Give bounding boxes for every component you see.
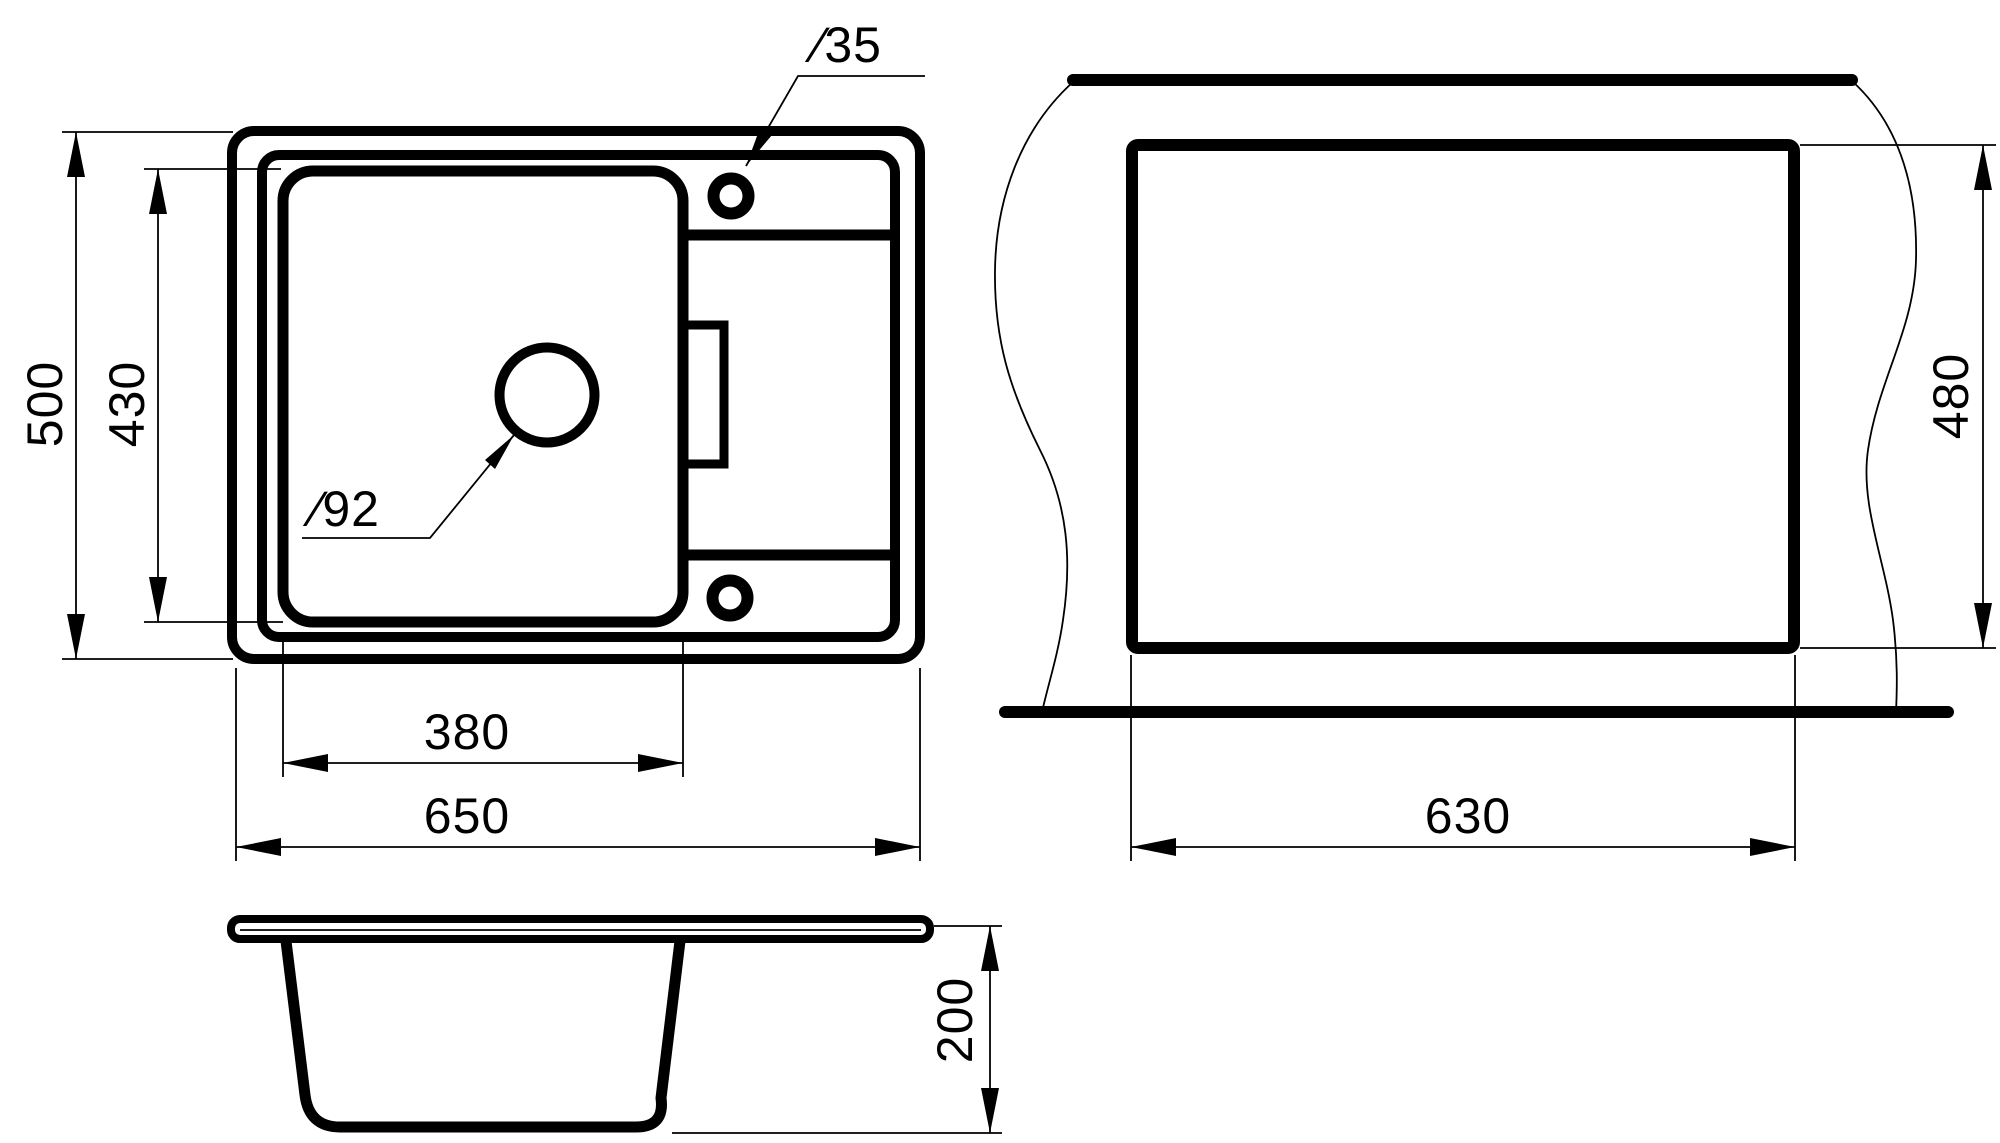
leader-drain-diameter: ∕92 (302, 435, 514, 538)
break-line-left (995, 82, 1073, 712)
cutout-outline (1132, 145, 1794, 648)
drawing-canvas: 500 430 380 650 (0, 0, 2000, 1143)
side-rim-plate (231, 919, 930, 939)
bowl-side-tab (683, 325, 724, 464)
dim-480: 480 (1800, 145, 1996, 648)
dim-650-label: 650 (424, 788, 510, 844)
faucet-diameter-label: ∕35 (804, 17, 882, 73)
dim-500-label: 500 (17, 361, 73, 447)
dim-200: 200 (672, 926, 1002, 1133)
technical-drawing: 500 430 380 650 (0, 0, 2000, 1143)
dim-650: 650 (236, 668, 920, 861)
break-line-right (1852, 81, 1916, 712)
dim-380-label: 380 (424, 704, 510, 760)
leader-faucet-diameter: ∕35 (746, 17, 925, 166)
dim-380: 380 (283, 632, 683, 777)
dim-430-label: 430 (99, 361, 155, 447)
sink-outer-outline (232, 131, 920, 659)
drain-diameter-label: ∕92 (302, 481, 380, 537)
dim-430: 430 (99, 169, 283, 622)
sink-rim-inner-outline (262, 155, 895, 637)
dim-630-label: 630 (1425, 788, 1511, 844)
dim-200-label: 200 (927, 977, 983, 1063)
sink-top-view: 500 430 380 650 (17, 17, 925, 861)
side-bowl-profile (286, 941, 680, 1127)
bowl-outline (283, 171, 683, 622)
dim-630: 630 (1131, 655, 1795, 861)
dim-480-label: 480 (1923, 353, 1979, 439)
countertop-cutout-view: 480 630 (995, 80, 1996, 861)
faucet-hole-top (714, 179, 749, 214)
faucet-hole-bottom (713, 581, 748, 616)
sink-side-section-view: 200 (231, 919, 1002, 1133)
drain-hole (500, 348, 595, 443)
